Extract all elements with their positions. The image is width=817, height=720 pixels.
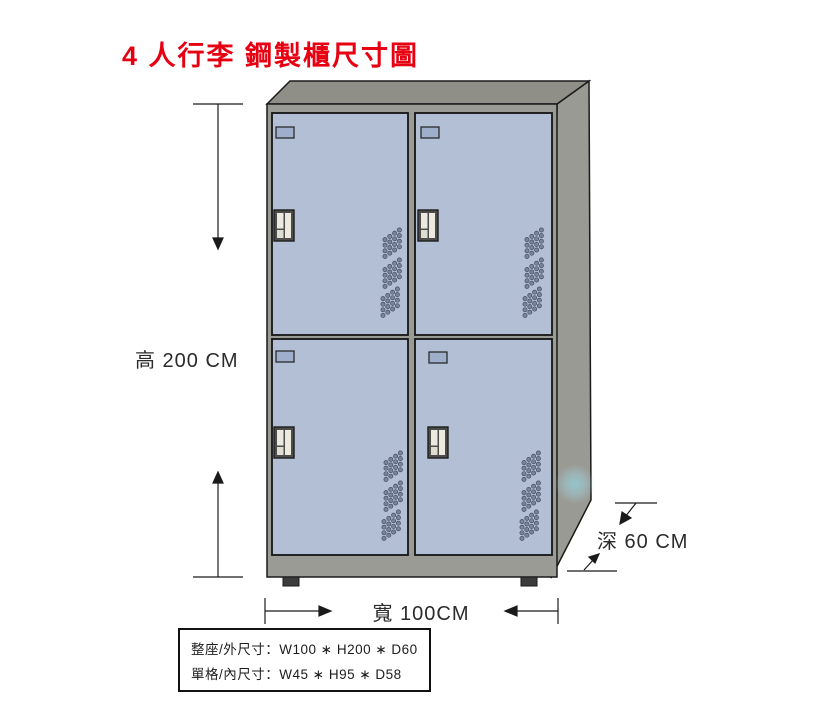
spec-line-inner-size: 單格/內尺寸：W45 ∗ H95 ∗ D58 bbox=[191, 662, 419, 687]
spec-line-outer-size: 整座/外尺寸：W100 ∗ H200 ∗ D60 bbox=[191, 637, 419, 662]
door-label-slot bbox=[429, 352, 447, 363]
width-dimension-arrow-left bbox=[265, 598, 331, 624]
door-label-slot bbox=[421, 127, 439, 138]
depth-dimension-arrow-lower bbox=[567, 554, 617, 571]
height-dimension-arrow-upper bbox=[193, 104, 243, 249]
depth-dimension-arrow-upper bbox=[615, 503, 657, 524]
door-label-slot bbox=[276, 351, 294, 362]
depth-dimension-label: 深 60 CM bbox=[597, 525, 688, 554]
diagram-page: 4 人行李 鋼製櫃尺寸圖 高 200 CM 寬 100CM 深 60 CM 整座… bbox=[0, 0, 817, 720]
page-title: 4 人行李 鋼製櫃尺寸圖 bbox=[122, 34, 419, 73]
locker-foot bbox=[521, 577, 537, 586]
locker-top-panel bbox=[267, 81, 589, 104]
height-dimension-label: 高 200 CM bbox=[135, 344, 239, 373]
door-handle bbox=[274, 427, 294, 458]
width-dimension-label: 寬 100CM bbox=[356, 597, 486, 626]
door-handle bbox=[428, 427, 448, 458]
height-dimension-arrow-lower bbox=[193, 472, 243, 577]
spec-box: 整座/外尺寸：W100 ∗ H200 ∗ D60 單格/內尺寸：W45 ∗ H9… bbox=[178, 628, 431, 692]
locker-foot bbox=[283, 577, 299, 586]
door-handle bbox=[274, 210, 294, 241]
watermark bbox=[555, 464, 595, 504]
door-label-slot bbox=[276, 127, 294, 138]
door-handle bbox=[418, 210, 438, 241]
width-dimension-arrow-right bbox=[505, 598, 558, 624]
